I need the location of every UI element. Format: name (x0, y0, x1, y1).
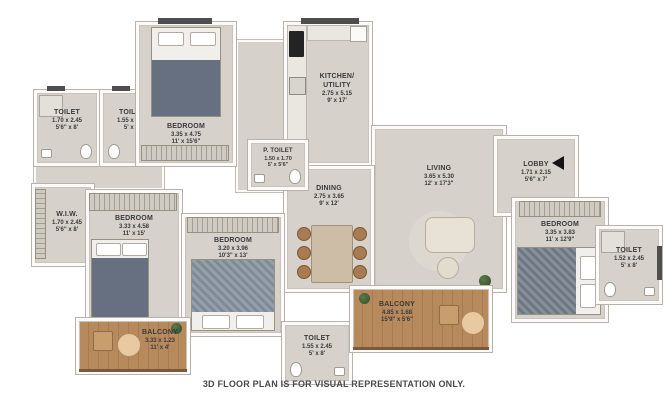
room-toilet-1: TOILET 1.70 x 2.45 5'6" x 8' (34, 90, 100, 166)
room-living: LIVING 3.65 x 5.30 12' x 17'3" (372, 126, 506, 292)
room-name: BEDROOM (89, 215, 179, 224)
washbasin (41, 149, 52, 158)
balcony-chair (93, 331, 113, 351)
washbasin (644, 287, 655, 296)
washbasin (254, 174, 265, 183)
floor-plan: TOILET 1.70 x 2.45 5'6" x 8' TOILET 1.55… (0, 0, 668, 404)
room-toilet-bottom: TOILET 1.55 x 2.45 5' x 8' (282, 322, 352, 384)
room-size-ft: 5'6" x 8' (37, 125, 97, 133)
room-size-ft: 11' x 15' (89, 231, 179, 239)
window (301, 18, 359, 24)
pillow (580, 256, 596, 280)
room-size-ft: 12' x 17'3" (375, 181, 503, 189)
pillow (96, 243, 121, 256)
window (158, 18, 212, 24)
ottoman (437, 257, 459, 279)
room-size-ft: 11' x 12'9" (515, 237, 605, 245)
room-size-ft: 5' x 8' (285, 351, 349, 359)
toilet-fixture (290, 362, 302, 377)
wardrobe (89, 193, 177, 211)
pillow (190, 32, 216, 46)
room-size-m: 3.35 x 3.83 (515, 230, 605, 238)
room-size-ft: 15'9" x 5'6" (365, 317, 429, 325)
wardrobe (141, 145, 229, 161)
room-size-m: 3.33 x 4.58 (89, 224, 179, 232)
dining-chair (353, 227, 367, 241)
fridge (350, 26, 367, 42)
plant (359, 293, 370, 304)
room-size-m: 1.50 x 1.70 (251, 156, 305, 163)
room-toilet-right: TOILET 1.52 x 2.45 5' x 8' (596, 226, 662, 304)
room-size-ft: 5' x 5'6" (251, 162, 305, 169)
wardrobe (187, 217, 279, 233)
room-size-m: 3.20 x 3.96 (185, 246, 281, 254)
dining-chair (297, 246, 311, 260)
room-size-m: 3.35 x 4.75 (139, 132, 233, 140)
pillow (158, 32, 184, 46)
balcony-table (117, 333, 141, 357)
toilet-fixture (289, 169, 301, 184)
wardrobe (519, 201, 601, 217)
room-size-m: 4.85 x 1.68 (365, 310, 429, 318)
room-size-m: 1.52 x 2.45 (599, 256, 659, 264)
balcony-left: BALCONY 3.33 x 1.23 11' x 4' (76, 318, 190, 374)
room-size-m: 1.70 x 2.45 (37, 118, 97, 126)
bed (91, 239, 149, 323)
room-name: KITCHEN/ UTILITY (305, 73, 369, 91)
room-name: BALCONY (365, 301, 429, 310)
plant (171, 323, 182, 334)
shower (601, 231, 625, 253)
toilet-fixture (604, 282, 616, 297)
balcony-railing (353, 347, 489, 350)
room-p-toilet: P. TOILET 1.50 x 1.70 5' x 5'6" (248, 140, 308, 190)
room-bedroom-middle: BEDROOM 3.20 x 3.96 10'3" x 13' (182, 214, 284, 336)
room-size-ft: 5'6" x 8' (43, 227, 91, 235)
blanket (92, 258, 148, 322)
room-name: W.I.W. (43, 211, 91, 220)
room-name: BEDROOM (185, 237, 281, 246)
bed (151, 27, 221, 117)
room-size-ft: 9' x 17' (305, 98, 369, 106)
balcony-right: BALCONY 4.85 x 1.68 15'9" x 5'6" (350, 286, 492, 352)
room-name: BEDROOM (139, 123, 233, 132)
room-name: TOILET (285, 335, 349, 344)
room-size-m: 1.55 x 2.45 (285, 344, 349, 352)
washbasin (334, 367, 345, 376)
room-size-m: 2.75 x 5.15 (305, 91, 369, 99)
pillow (122, 243, 147, 256)
blanket (192, 260, 274, 312)
blanket (152, 60, 220, 116)
room-size-m: 3.65 x 5.30 (375, 174, 503, 182)
dining-chair (297, 265, 311, 279)
balcony-railing (79, 369, 187, 372)
bed (191, 259, 275, 331)
cooktop (289, 31, 304, 57)
wardrobe (35, 189, 46, 259)
room-name: LIVING (375, 165, 503, 174)
room-size-ft: 9' x 12' (287, 201, 371, 209)
dining-chair (297, 227, 311, 241)
room-size-m: 1.70 x 2.45 (43, 220, 91, 228)
entry-arrow-icon (552, 156, 564, 170)
pillow (580, 284, 596, 308)
room-size-ft: 5'6" x 7' (497, 177, 575, 185)
room-bedroom-left: BEDROOM 3.33 x 4.58 11' x 15' (86, 190, 182, 330)
dining-table (311, 225, 353, 283)
kitchen-sink (289, 77, 306, 95)
room-bedroom-right: BEDROOM 3.35 x 3.83 11' x 12'9" (512, 198, 608, 322)
room-wiw: W.I.W. 1.70 x 2.45 5'6" x 8' (32, 184, 94, 266)
room-name: BEDROOM (515, 221, 605, 230)
room-bedroom-top: BEDROOM 3.35 x 4.75 11' x 15'6" (136, 22, 236, 166)
window (47, 86, 65, 91)
room-name: P. TOILET (251, 148, 305, 156)
dining-chair (353, 265, 367, 279)
room-size-m: 2.75 x 3.65 (287, 194, 371, 202)
window (657, 246, 662, 280)
window (112, 86, 130, 91)
room-size-ft: 11' x 4' (135, 345, 185, 353)
balcony-table (461, 311, 485, 335)
dining-chair (353, 246, 367, 260)
toilet-fixture (80, 144, 92, 159)
pillow (202, 315, 230, 329)
room-size-ft: 5' x 8' (599, 263, 659, 271)
bed (517, 247, 601, 315)
toilet-fixture (108, 144, 120, 159)
disclaimer-text: 3D FLOOR PLAN IS FOR VISUAL REPRESENTATI… (0, 379, 668, 389)
room-size-m: 3.33 x 1.23 (135, 338, 185, 346)
room-size-m: 1.71 x 2.15 (497, 170, 575, 178)
shower (39, 95, 63, 117)
balcony-chair (439, 305, 459, 325)
pillow (236, 315, 264, 329)
lounge-chair (425, 217, 475, 253)
blanket (518, 248, 576, 314)
